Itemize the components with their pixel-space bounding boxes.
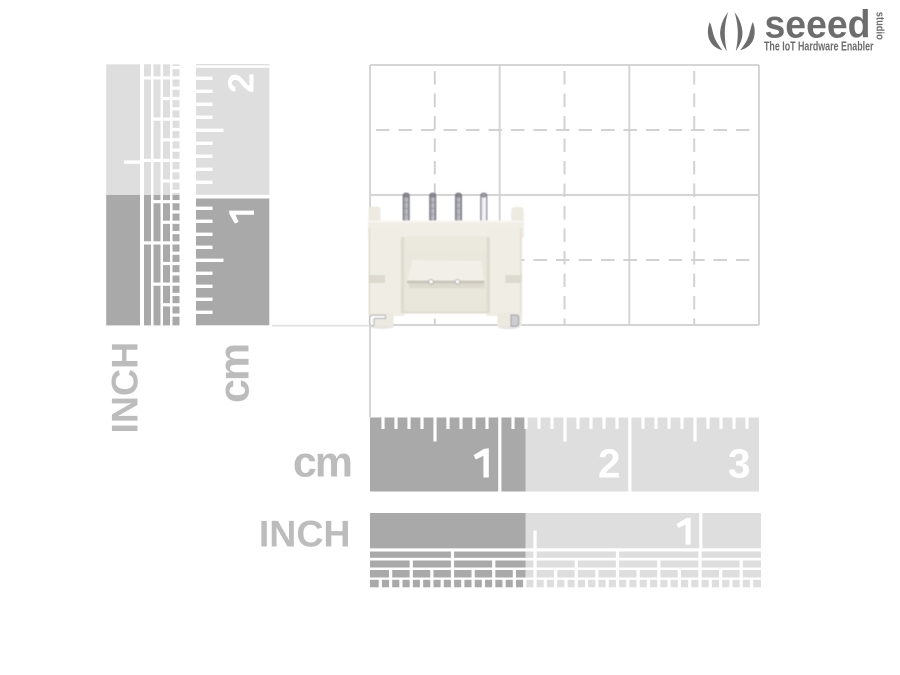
svg-text:INCH: INCH xyxy=(259,513,351,555)
svg-text:2: 2 xyxy=(598,441,621,487)
svg-text:2: 2 xyxy=(221,73,262,93)
svg-text:The IoT Hardware Enabler: The IoT Hardware Enabler xyxy=(764,39,874,54)
svg-text:cm: cm xyxy=(293,439,351,487)
svg-text:cm: cm xyxy=(211,345,259,403)
svg-text:studio: studio xyxy=(874,12,886,40)
svg-text:INCH: INCH xyxy=(104,342,146,434)
svg-text:3: 3 xyxy=(728,441,751,487)
